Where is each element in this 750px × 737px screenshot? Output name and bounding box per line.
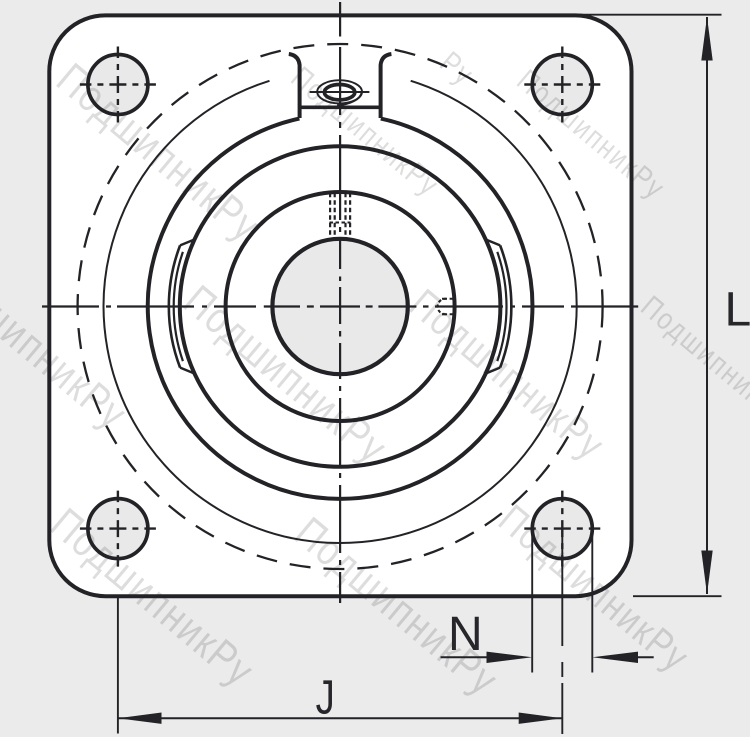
- svg-text:N: N: [448, 608, 483, 661]
- svg-text:J: J: [316, 672, 335, 725]
- svg-text:L: L: [725, 284, 750, 337]
